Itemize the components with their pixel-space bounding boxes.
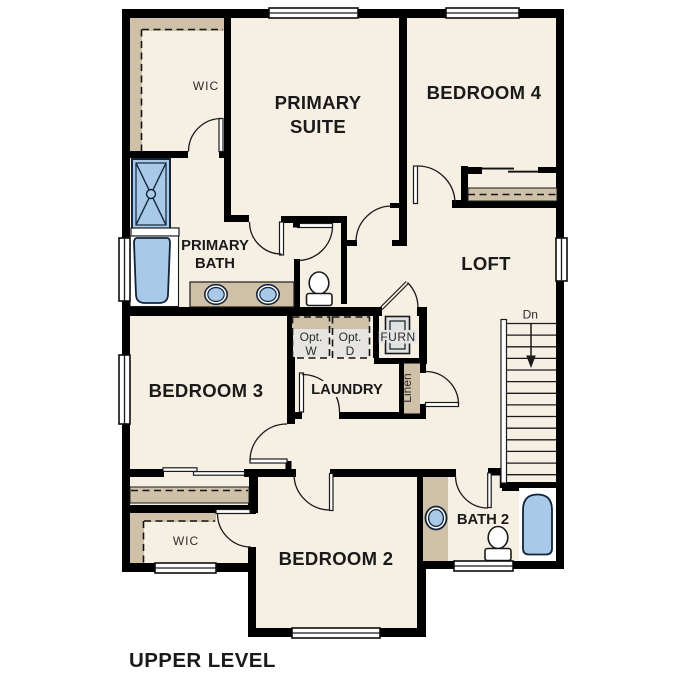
svg-text:BEDROOM 3: BEDROOM 3 — [149, 380, 264, 401]
svg-text:PRIMARY: PRIMARY — [275, 92, 362, 113]
svg-text:D: D — [346, 344, 355, 358]
svg-text:BATH: BATH — [195, 256, 235, 272]
svg-text:WIC: WIC — [173, 534, 199, 548]
svg-text:Opt.: Opt. — [339, 330, 362, 344]
svg-text:WIC: WIC — [193, 79, 219, 93]
svg-text:FURN: FURN — [380, 330, 415, 344]
svg-text:Linen: Linen — [400, 373, 414, 402]
svg-text:UPPER LEVEL: UPPER LEVEL — [129, 649, 276, 672]
svg-text:BEDROOM 2: BEDROOM 2 — [279, 548, 394, 569]
svg-text:BATH 2: BATH 2 — [457, 512, 509, 528]
svg-text:LAUNDRY: LAUNDRY — [311, 382, 383, 398]
svg-text:Dn: Dn — [523, 308, 538, 322]
svg-text:PRIMARY: PRIMARY — [181, 238, 249, 254]
svg-text:W: W — [305, 344, 317, 358]
svg-text:BEDROOM 4: BEDROOM 4 — [427, 82, 542, 103]
svg-text:SUITE: SUITE — [290, 116, 346, 137]
svg-text:LOFT: LOFT — [461, 253, 511, 274]
svg-text:Opt.: Opt. — [300, 330, 323, 344]
